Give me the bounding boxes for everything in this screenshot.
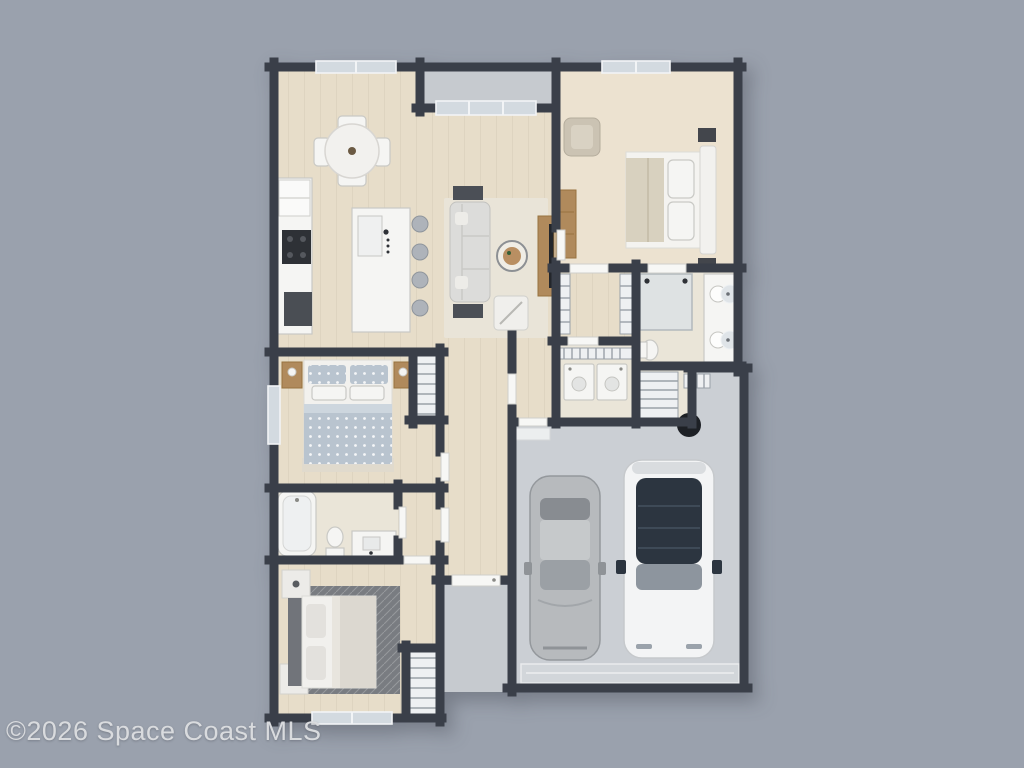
garage-entry-door [519,418,547,426]
closet-3 [408,648,436,714]
bar-stool [412,272,428,288]
alcove-double-doors [508,374,516,404]
windshield [540,560,590,590]
bedroom3-door [404,556,430,564]
shower-head [682,278,687,283]
door-knob [492,578,496,582]
pillow [668,202,694,240]
glass-roof [636,478,702,564]
rear-window [540,498,590,520]
toilet [327,527,343,547]
closet-shelving [620,274,632,334]
garage-cabinet [516,428,550,440]
pillow [350,386,384,400]
pillow [668,160,694,198]
patio-floor [424,71,552,104]
rear-spoiler [632,462,706,474]
headlight [636,644,652,649]
closet-door [570,264,608,273]
master-door [557,230,565,260]
hallway-foyer-floor [440,338,516,583]
bath2-door [399,507,406,538]
hanging-rod [558,348,632,359]
toilet-tank [640,342,647,358]
car-roof [540,520,590,560]
nightstand [698,128,716,142]
headboard [700,146,716,254]
coffee-table-top [503,247,521,265]
laundry-door [568,337,598,345]
floor-plan-svg [0,0,1024,768]
centerpiece [348,147,356,155]
bar-stool [412,244,428,260]
pillow [306,604,326,638]
vestibule-door [441,508,449,542]
bar-stool [412,300,428,316]
windshield [636,564,702,590]
sofa-pillow [455,212,468,225]
sink [363,537,380,550]
bedroom-3 [280,570,400,694]
shower-head [644,278,649,283]
faucet [369,551,373,555]
side-table [453,304,483,318]
bar-stool [412,216,428,232]
master-bed-blanket [626,158,664,242]
pillow [306,646,326,680]
floor-plan-render: ©2026 Space Coast MLS [0,0,1024,768]
white-suv [616,460,722,658]
side-mirror [598,562,606,575]
entry-walk-floor [440,585,508,692]
side-mirror [524,562,532,575]
sofa-pillow [455,276,468,289]
sliding-glass-door [436,101,536,115]
headboard-3 [288,598,302,686]
alcove-floor [512,338,556,426]
bathroom-door [648,264,686,273]
living-room [444,186,554,338]
faucet [383,229,388,234]
headlight [686,644,702,649]
wire-shelving [640,372,678,418]
oven [284,292,312,326]
pillow [312,386,346,400]
island-sink [358,216,382,256]
watermark: ©2026 Space Coast MLS [6,716,322,747]
bedroom2-window [268,386,280,444]
pillow [308,365,346,384]
bedroom2-door [441,453,449,481]
cooktop [282,230,311,264]
tub-faucet [295,498,299,502]
silver-sedan [524,476,606,660]
side-table [453,186,483,200]
pillow [350,365,388,384]
duvet-fold [304,404,392,413]
side-mirror [712,560,722,574]
side-mirror [616,560,626,574]
